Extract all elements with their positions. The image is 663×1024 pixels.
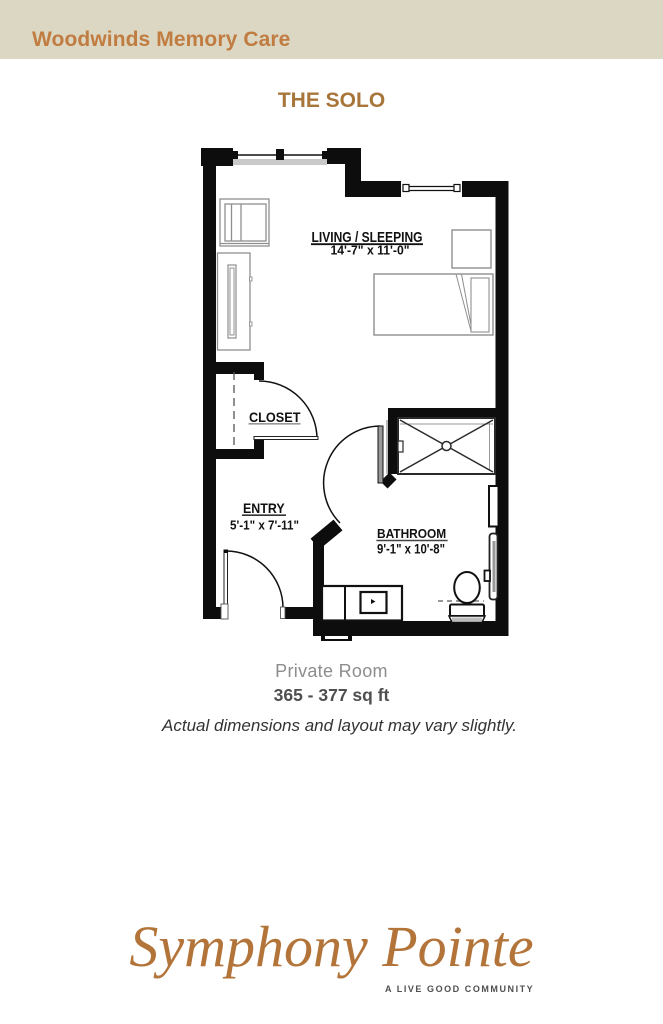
svg-text:CLOSET: CLOSET	[249, 410, 301, 425]
svg-text:5'-1" x 7'-11": 5'-1" x 7'-11"	[230, 518, 299, 533]
svg-text:9'-1" x 10'-8": 9'-1" x 10'-8"	[377, 542, 445, 557]
svg-text:BATHROOM: BATHROOM	[377, 526, 446, 541]
svg-text:ENTRY: ENTRY	[243, 501, 285, 516]
